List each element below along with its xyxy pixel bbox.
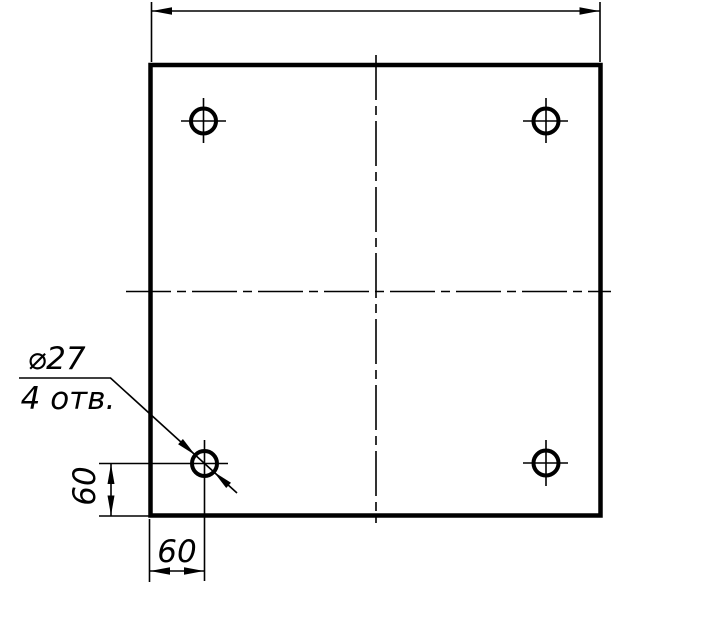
engineering-drawing-canvas: 60 60 ⌀27 4 отв. <box>0 0 713 631</box>
callout-diameter-label: ⌀27 <box>27 341 85 377</box>
drawing-background <box>0 0 713 631</box>
callout-count-label: 4 отв. <box>21 381 116 417</box>
bottom-dim-value: 60 <box>157 534 196 570</box>
left-dim-value: 60 <box>67 466 103 505</box>
